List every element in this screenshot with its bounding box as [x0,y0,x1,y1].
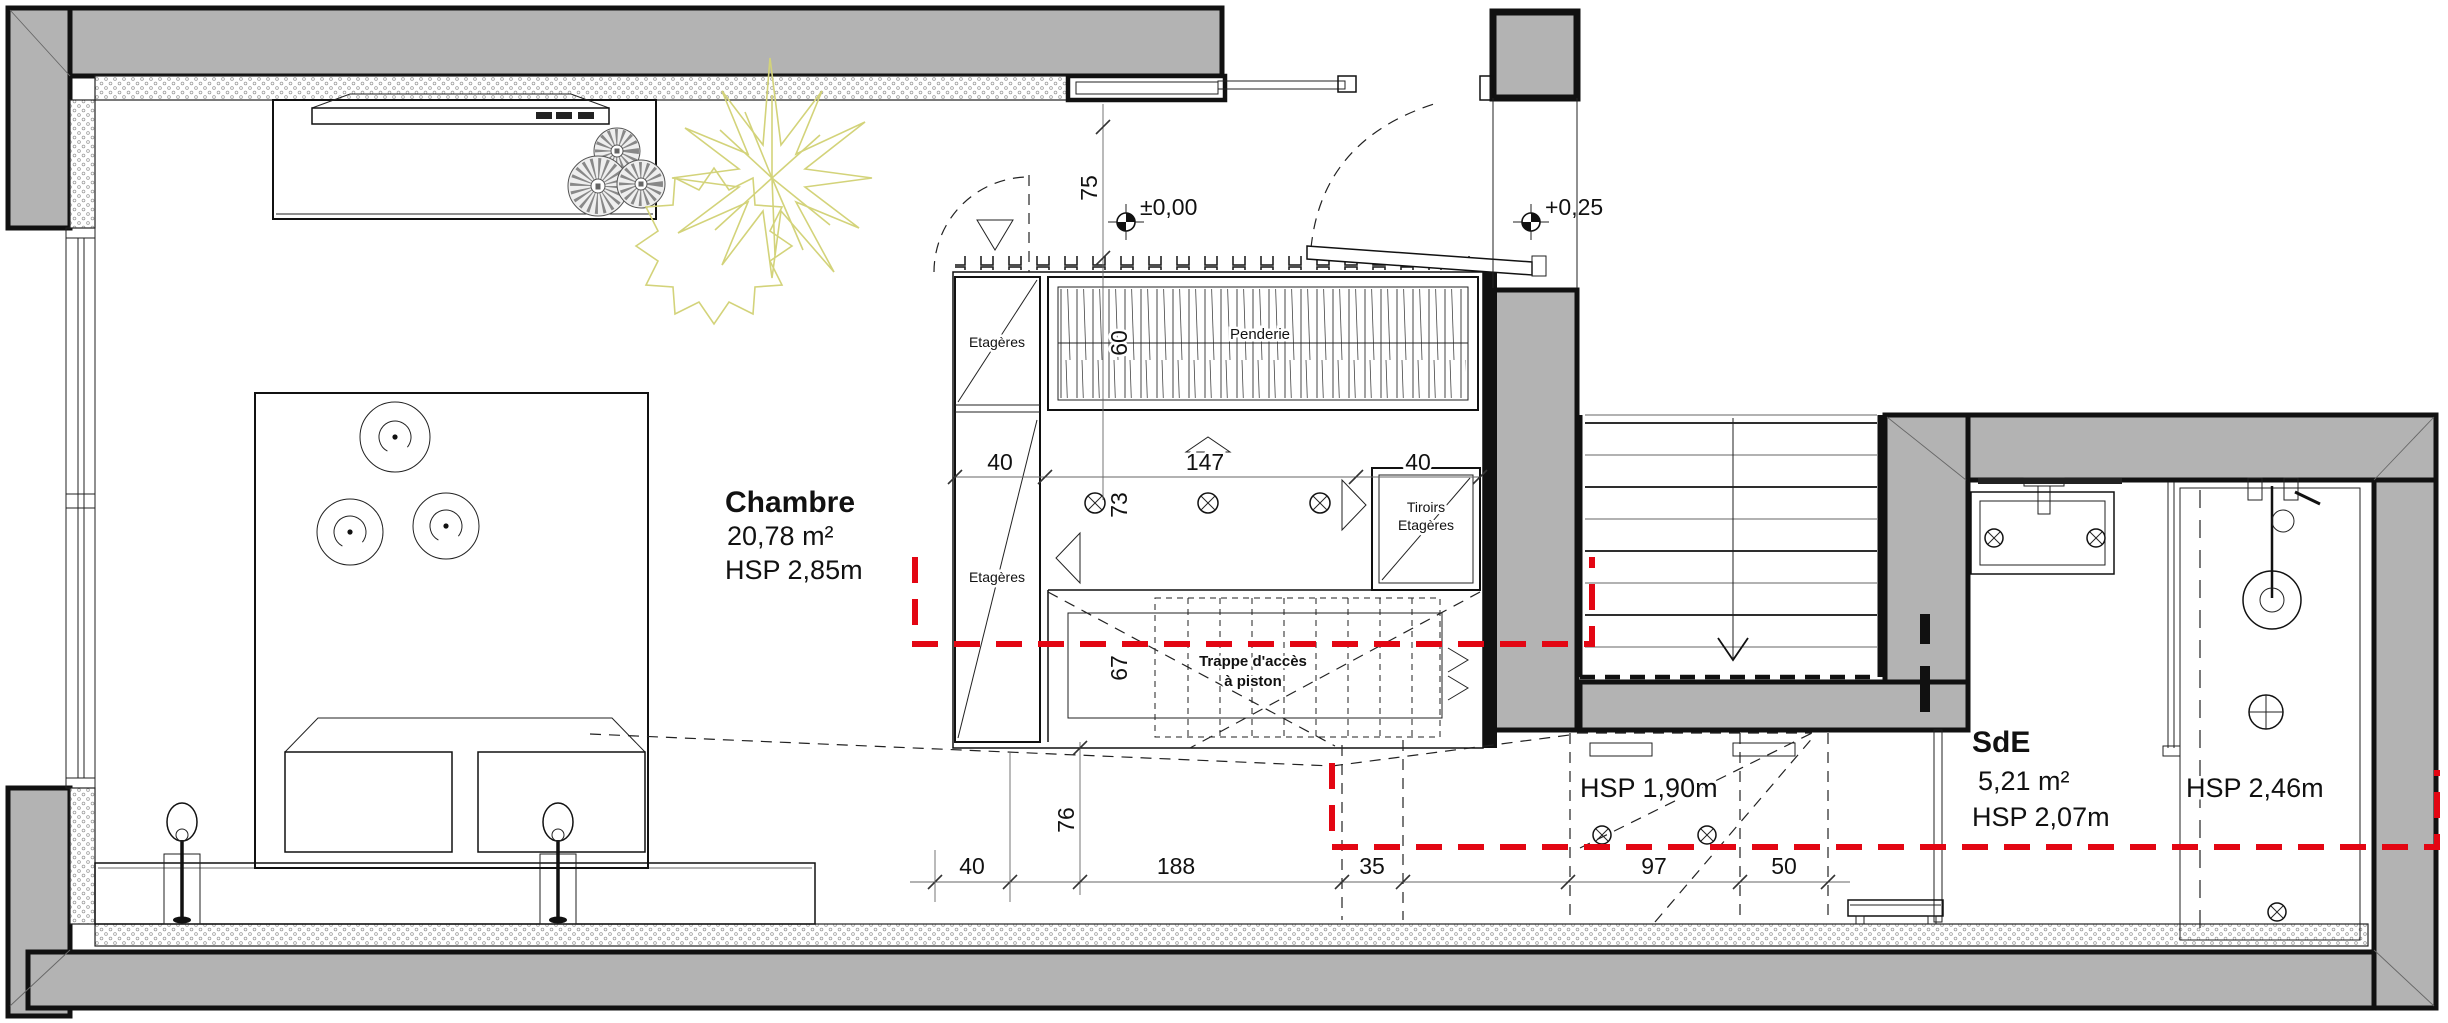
drain-icon [2249,695,2283,729]
wall-bottom [28,952,2436,1008]
shower-mixer [2272,510,2294,532]
faucet-icon [2038,486,2050,514]
drawers-label-line2: Etagères [1398,517,1454,533]
level-label-entry: +0,25 [1545,194,1603,220]
desk [273,94,665,219]
room-area-sde: 5,21 m² [1978,766,2070,796]
slope-projection-line [590,734,1332,766]
dim-50: 50 [1771,853,1797,879]
trap-diagonal [1190,592,1480,748]
sde-door-jamb [1920,666,1930,712]
door-swing-arc [1311,104,1434,248]
arrow-left-icon [1056,533,1080,583]
dim-73: 73 [1106,492,1132,518]
shower-glass-cap [2163,746,2180,756]
spotlight-icon [1698,826,1716,844]
wall-stair-left [1493,290,1577,730]
sliding-leaf [1218,81,1345,89]
slope-dashed [1655,735,1815,922]
dim-67: 67 [1106,655,1132,681]
bed-cushion-icon [360,402,430,472]
shower-tray [2180,488,2360,940]
drawers-label-line1: Tiroirs [1407,499,1445,515]
wall-top [28,8,1222,76]
room-height-sde: HSP 2,07m [1972,802,2110,832]
spotlight-icon [1985,529,2003,547]
bed [255,393,648,868]
window-left [66,228,95,788]
arrow-down-icon [977,220,1013,250]
vanity-counter [1971,492,2114,574]
shelves-label-bottom: Etagères [969,569,1025,585]
room-height-chambre: HSP 2,85m [725,555,863,585]
pocket-sliding-door [1068,76,1493,100]
spotlight-icon [1198,493,1218,513]
wall-closet-right [1483,268,1497,748]
spotlight-icon [1310,493,1330,513]
duvet-fold [285,718,645,752]
under-stairs-zone [1342,733,1828,922]
laptop-vent-icon [578,112,594,119]
chevron-right-icon [1448,648,1468,672]
decor-plates [568,128,665,216]
lamp-shade-icon [543,803,573,841]
lamp-base [549,917,567,924]
sliding-leaf-cap [1338,76,1356,92]
staircase [1580,415,1880,677]
dim-60: 60 [1106,330,1132,356]
spotlight-icon [2087,529,2105,547]
door-pocket [1068,76,1225,100]
bedside-ledge [95,863,815,924]
insulation-bottom [95,924,2368,946]
bed-cushion-icon [413,493,479,559]
pillow-left [285,752,452,852]
plant-fronds [715,95,830,255]
wall-left-upper [8,8,70,228]
lamp-base [173,917,191,924]
laptop-vent-icon [536,112,552,119]
under-stair-step [1733,743,1795,756]
under-stair-step [1590,743,1652,756]
trap-label-line2: à piston [1224,673,1282,690]
dim-97: 97 [1641,853,1667,879]
dim-76: 76 [1053,807,1079,833]
lamp-shade-icon [167,803,197,841]
walls [8,8,2436,1016]
door-leaf [1307,246,1532,275]
arrow-right-icon [1342,480,1366,530]
stair-treads [1585,415,1877,647]
dim-35: 35 [1359,853,1385,879]
wall-entry-pillar [1493,12,1577,98]
pillow-right [478,752,645,852]
floor-plan-drawing: Chambre 20,78 m² HSP 2,85m SdE 5,21 m² H… [0,0,2448,1023]
chevron-right-icon [1448,676,1468,700]
dim-75: 75 [1076,175,1102,201]
door-hinge-block [1532,256,1546,276]
sde-partition-wall [1934,730,1942,922]
room-label-chambre: Chambre [725,486,855,519]
floor-plan: Chambre 20,78 m² HSP 2,85m SdE 5,21 m² H… [0,0,2448,1023]
shower [2163,478,2360,940]
dim-188: 188 [1157,853,1195,879]
room-label-sde: SdE [1972,726,2030,759]
shower-handle [2295,492,2320,504]
spotlight-icon [2268,903,2286,921]
towel-bench [1848,900,1943,924]
dim-closet-mid: 147 [1186,449,1224,475]
level-marker-entry [1513,204,1549,240]
slope-projection-line [1332,734,1577,766]
spotlight-icon [1085,493,1105,513]
insulation-left-lower [70,788,95,924]
shelves-label-top: Etagères [969,334,1025,350]
level-marker-zero [1108,204,1144,240]
entry-door [1307,104,1546,276]
wall-stair-bottom [1580,682,1968,730]
zone-height-shower: HSP 2,46m [2186,773,2324,803]
trap-label-line1: Trappe d'accès [1199,653,1307,670]
sde-door-jamb [1920,614,1930,644]
laptop-vent-icon [556,112,572,119]
vanity-wall-rail [1978,478,2122,484]
room-area-chambre: 20,78 m² [727,521,834,551]
dim-closet-left: 40 [987,449,1013,475]
spotlight-icon [1593,826,1611,844]
insulation-top [95,76,1068,100]
insulation-left-upper [70,100,95,228]
window-mullion-mid [66,494,95,508]
vanity-sink [1971,478,2122,574]
zone-height-under-stairs: HSP 1,90m [1580,773,1718,803]
plate-icon [617,160,665,208]
penderie-label: Penderie [1230,326,1290,343]
bed-cushion-icon [317,499,383,565]
dim-40: 40 [959,853,985,879]
level-label-zero: ±0,00 [1140,194,1197,220]
dim-closet-right: 40 [1405,449,1431,475]
wall-right [2374,480,2436,1008]
